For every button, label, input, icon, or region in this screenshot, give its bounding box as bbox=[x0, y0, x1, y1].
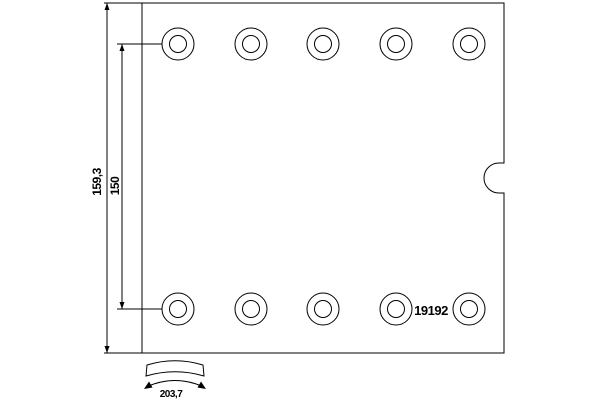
dimension-arc-width: 203,7 bbox=[144, 381, 206, 400]
arrowhead-down-icon bbox=[105, 346, 110, 353]
part-number-label: 19192 bbox=[414, 303, 448, 318]
dimension-arc bbox=[146, 381, 204, 388]
arrowhead-up-icon bbox=[120, 44, 125, 51]
brake-lining-drawing: 19192 159,3 150 203,7 bbox=[0, 0, 600, 400]
technical-drawing-canvas: 19192 159,3 150 203,7 bbox=[0, 0, 600, 400]
hole-spacing-value: 150 bbox=[108, 176, 122, 195]
arrowhead-up-icon bbox=[105, 3, 110, 10]
arrowhead-down-icon bbox=[120, 302, 125, 309]
arc-width-value: 203,7 bbox=[160, 389, 183, 400]
overall-height-value: 159,3 bbox=[90, 167, 104, 195]
lining-curvature-profile bbox=[146, 361, 204, 376]
